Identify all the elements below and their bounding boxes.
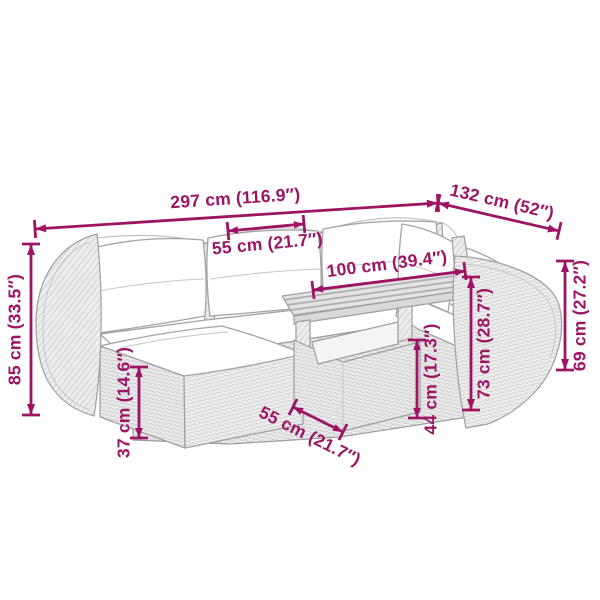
dimension-label-total-height: 85 cm (33.5″) <box>5 274 25 385</box>
dimension-label-table-height: 44 cm (17.3″) <box>421 323 441 434</box>
dimension-total-height: 85 cm (33.5″) <box>5 244 40 415</box>
dimension-wing-depth: 132 cm (52″) <box>436 178 565 240</box>
dimension-label-armrest-height: 69 cm (27.2″) <box>570 260 590 371</box>
dimension-label-ottoman-height: 37 cm (14.6″) <box>114 347 134 458</box>
left-armrest <box>36 234 101 416</box>
dimension-label-total-width: 297 cm (116.9″) <box>170 184 301 212</box>
table-support <box>398 306 412 342</box>
back-cushion <box>96 239 206 333</box>
dimension-diagram: 297 cm (116.9″) 132 cm (52″) 55 cm (21.7… <box>0 0 600 600</box>
diagram-canvas: 297 cm (116.9″) 132 cm (52″) 55 cm (21.7… <box>0 0 600 600</box>
dimension-label-backrest-height: 73 cm (28.7″) <box>474 288 494 399</box>
